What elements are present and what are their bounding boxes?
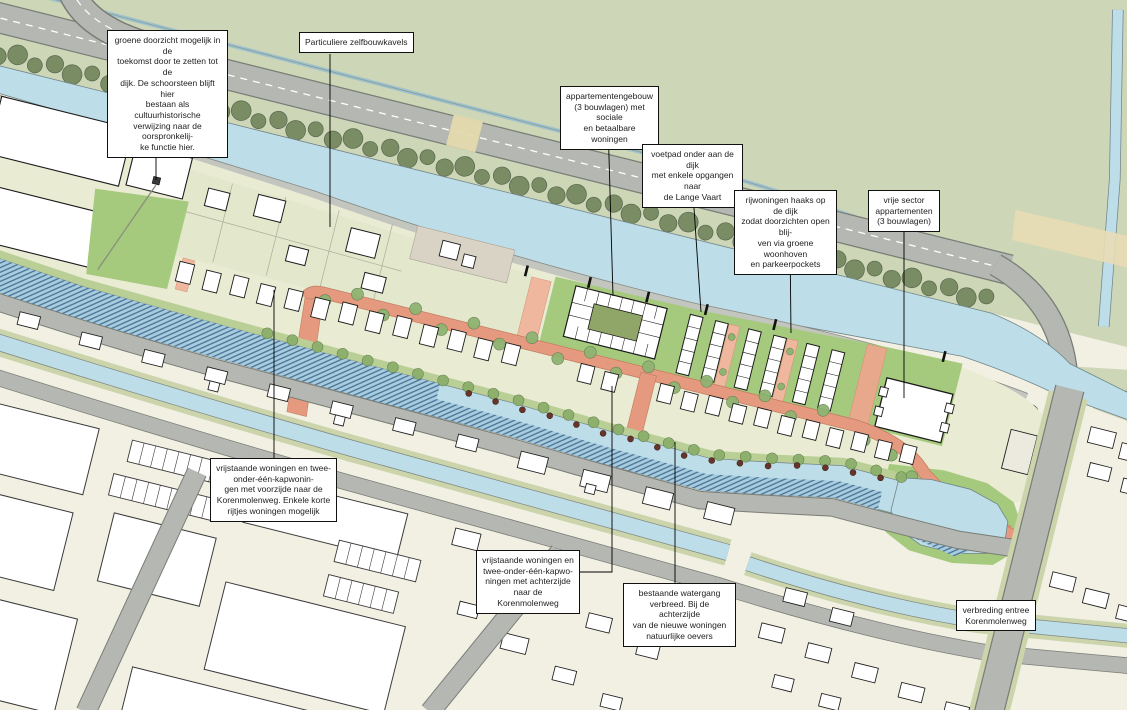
annotation-groene-doorzicht: groene doorzicht mogelijk in de toekomst… bbox=[107, 30, 228, 158]
annotation-voetpad-dijk: voetpad onder aan de dijk met enkele opg… bbox=[642, 144, 743, 208]
annotation-rijwoningen-dijk: rijwoningen haaks op de dijk zodat doorz… bbox=[734, 190, 837, 275]
annotation-woningen-achterzijde: vrijstaande woningen en twee-onder-één-k… bbox=[476, 550, 580, 614]
annotation-woningen-voorzijde: vrijstaande woningen en twee- onder-één-… bbox=[210, 458, 337, 522]
annotation-watergang: bestaande watergang verbreed. Bij de ach… bbox=[623, 583, 736, 647]
annotation-entree: verbreding entree Korenmolenweg bbox=[956, 600, 1036, 631]
annotation-vrije-sector: vrije sector appartementen (3 bouwlagen) bbox=[868, 190, 940, 232]
annotation-zelfbouwkavels: Particuliere zelfbouwkavels bbox=[299, 32, 414, 53]
masterplan-page: groene doorzicht mogelijk in de toekomst… bbox=[0, 0, 1127, 710]
annotation-appartementen-sociaal: appartementengebouw (3 bouwlagen) met so… bbox=[560, 86, 659, 150]
